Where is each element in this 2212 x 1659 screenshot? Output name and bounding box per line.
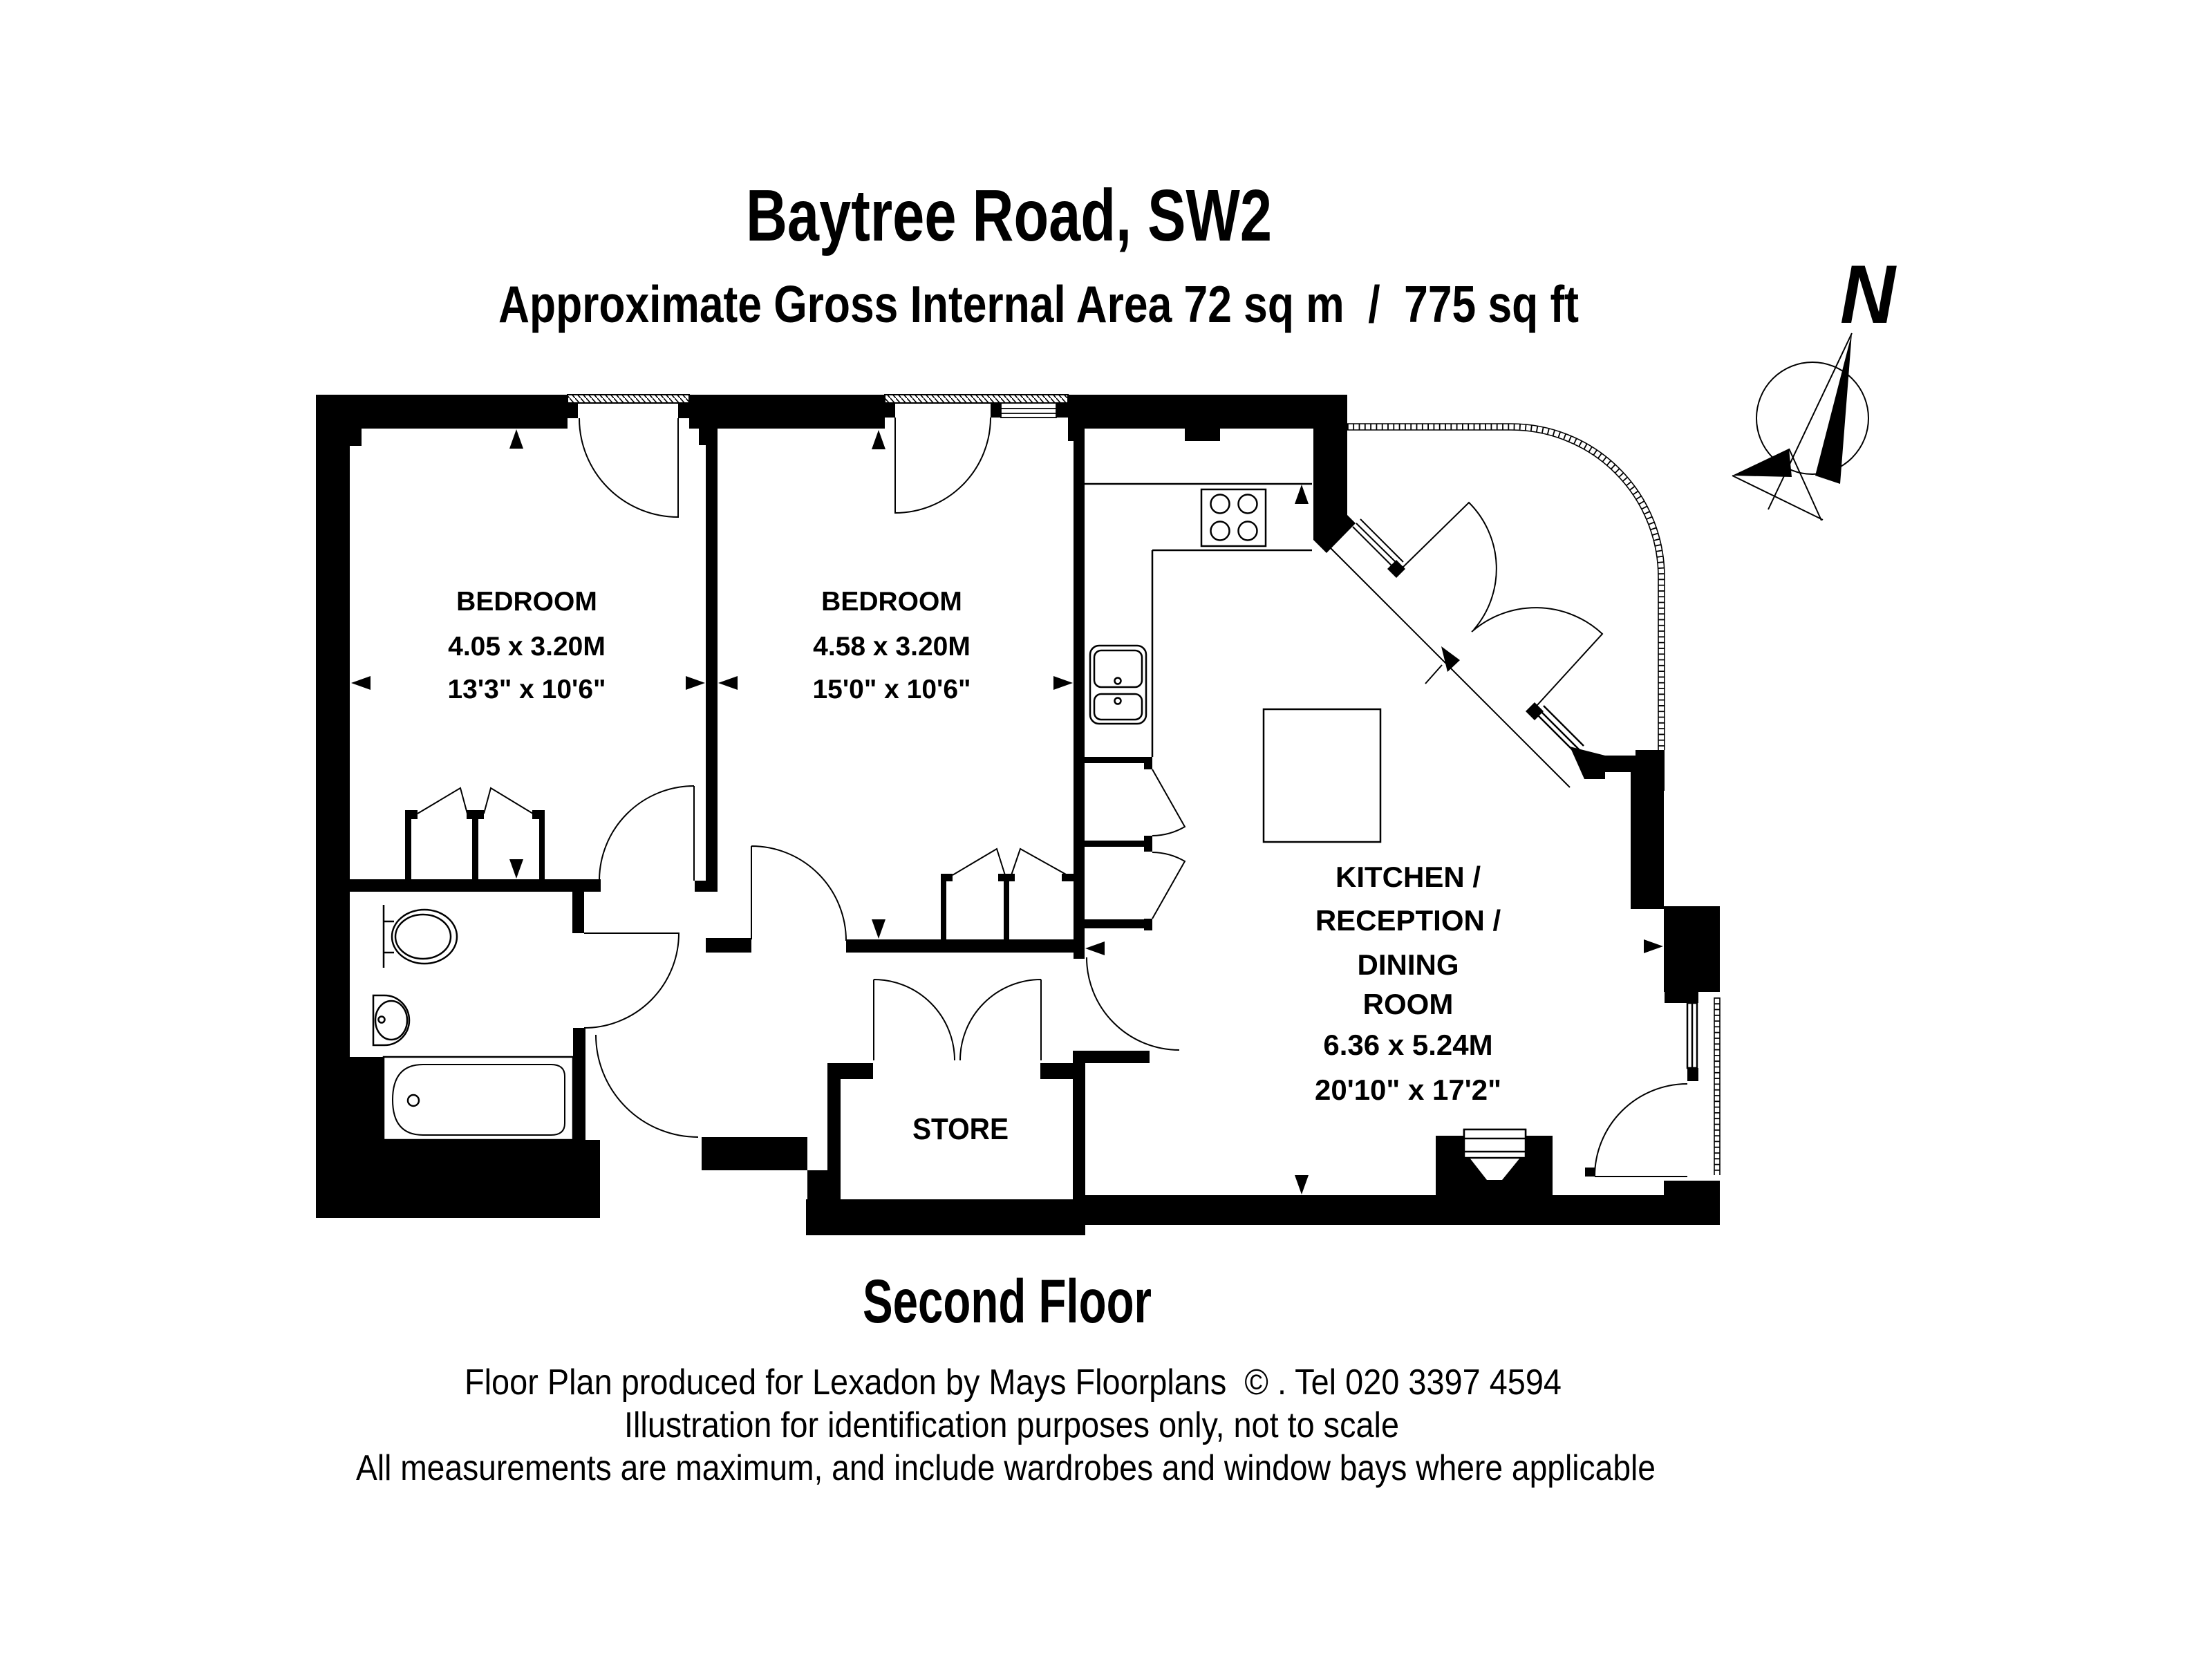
svg-text:All measurements are maximum,: All measurements are maximum, and includ… <box>356 1448 1656 1488</box>
svg-text:BEDROOM: BEDROOM <box>456 587 597 617</box>
svg-text:Baytree Road, SW2: Baytree Road, SW2 <box>746 175 1272 256</box>
svg-text:Approximate Gross Internal Are: Approximate Gross Internal Area 72 sq m … <box>498 275 1579 333</box>
svg-text:BEDROOM: BEDROOM <box>821 587 962 617</box>
svg-text:N: N <box>1840 248 1897 341</box>
svg-text:4.05 x 3.20M: 4.05 x 3.20M <box>448 632 606 662</box>
svg-text:KITCHEN /: KITCHEN / <box>1335 861 1481 893</box>
svg-text:15'0" x 10'6": 15'0" x 10'6" <box>812 675 971 704</box>
svg-text:6.36 x 5.24M: 6.36 x 5.24M <box>1323 1029 1492 1061</box>
svg-text:DINING: DINING <box>1358 948 1459 981</box>
svg-text:STORE: STORE <box>912 1112 1009 1146</box>
svg-text:ROOM: ROOM <box>1363 988 1454 1020</box>
svg-text:Floor Plan produced for Lexado: Floor Plan produced for Lexadon by Mays … <box>465 1362 1562 1403</box>
svg-text:RECEPTION /: RECEPTION / <box>1315 904 1501 937</box>
svg-text:13'3" x 10'6": 13'3" x 10'6" <box>447 675 606 704</box>
svg-text:Second Floor: Second Floor <box>863 1266 1152 1335</box>
svg-text:4.58 x 3.20M: 4.58 x 3.20M <box>813 632 971 662</box>
svg-text:Illustration for identificatio: Illustration for identification purposes… <box>624 1405 1399 1445</box>
svg-text:20'10" x 17'2": 20'10" x 17'2" <box>1315 1074 1501 1106</box>
